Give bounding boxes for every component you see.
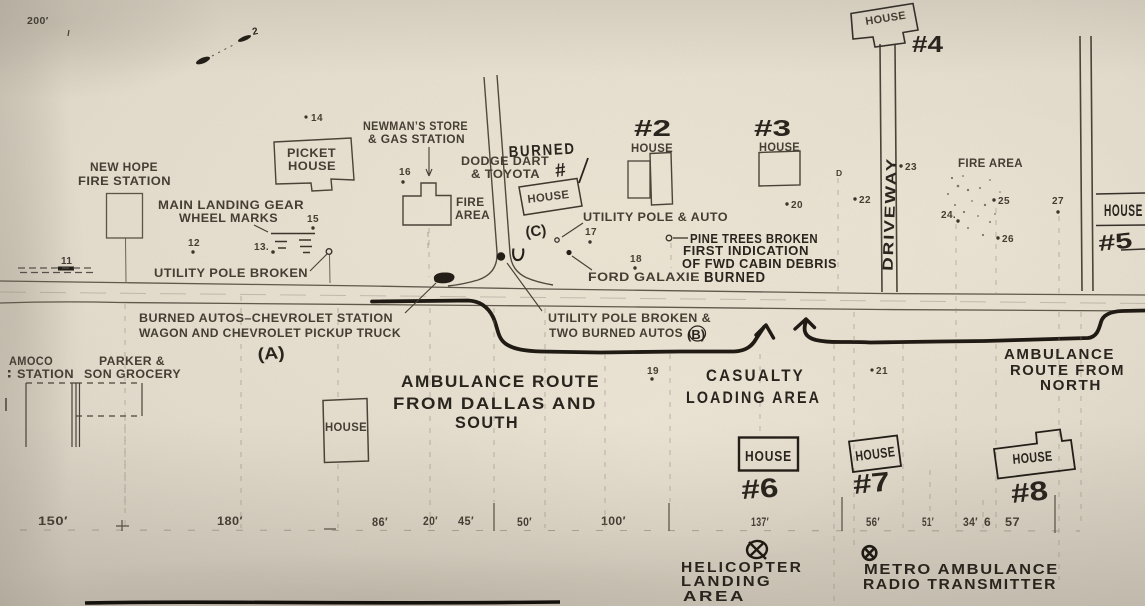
svg-text:11: 11 — [61, 256, 72, 267]
svg-text:METRO AMBULANCE: METRO AMBULANCE — [864, 562, 1059, 578]
svg-text:RADIO TRANSMITTER: RADIO TRANSMITTER — [863, 577, 1057, 593]
svg-text:#2: #2 — [634, 115, 671, 141]
svg-text:NORTH: NORTH — [1040, 378, 1102, 394]
svg-text:26: 26 — [1002, 234, 1014, 245]
svg-text:21: 21 — [876, 366, 888, 377]
svg-text:BURNED AUTOS–CHEVROLET STATION: BURNED AUTOS–CHEVROLET STATION — [139, 311, 393, 325]
svg-text:(A): (A) — [257, 343, 285, 364]
svg-text:HOUSE: HOUSE — [745, 449, 792, 465]
svg-text:CASUALTY: CASUALTY — [706, 366, 805, 385]
svg-text:& GAS STATION: & GAS STATION — [368, 132, 465, 146]
svg-text:200′: 200′ — [27, 15, 49, 27]
svg-text:OF FWD CABIN DEBRIS: OF FWD CABIN DEBRIS — [682, 257, 837, 271]
svg-text:UTILITY POLE & AUTO: UTILITY POLE & AUTO — [583, 210, 728, 224]
svg-text:#8: #8 — [1009, 475, 1049, 509]
svg-text:#6: #6 — [740, 472, 779, 505]
svg-text:FIRE STATION: FIRE STATION — [78, 174, 171, 188]
svg-text:13.: 13. — [254, 242, 269, 253]
svg-text:AREA: AREA — [683, 589, 746, 605]
svg-text:16: 16 — [399, 167, 411, 178]
svg-text:FIRE: FIRE — [456, 195, 484, 209]
svg-text:HOUSE: HOUSE — [325, 420, 367, 434]
svg-text:& TOYOTA: & TOYOTA — [471, 167, 540, 181]
svg-text:#5: #5 — [1097, 227, 1133, 255]
svg-text:50′: 50′ — [517, 515, 532, 529]
svg-text:NEW HOPE: NEW HOPE — [90, 160, 158, 174]
svg-text:D: D — [836, 168, 843, 178]
svg-text:HOUSE: HOUSE — [1104, 202, 1143, 220]
svg-text:ROUTE FROM: ROUTE FROM — [1010, 363, 1125, 379]
svg-text:#7: #7 — [851, 466, 891, 500]
svg-text:LANDING: LANDING — [681, 574, 772, 590]
svg-text:WAGON AND CHEVROLET PICKUP TRU: WAGON AND CHEVROLET PICKUP TRUCK — [139, 326, 401, 340]
svg-text:6: 6 — [984, 515, 991, 529]
svg-text:180′: 180′ — [217, 514, 243, 528]
svg-text:FORD GALAXIE: FORD GALAXIE — [588, 270, 700, 284]
svg-text:20′: 20′ — [423, 514, 438, 528]
svg-text:SON GROCERY: SON GROCERY — [84, 367, 181, 381]
svg-text:17: 17 — [585, 227, 597, 238]
svg-text:MAIN LANDING GEAR: MAIN LANDING GEAR — [158, 198, 304, 212]
svg-text:23: 23 — [905, 162, 917, 173]
svg-text:150′: 150′ — [38, 514, 68, 528]
svg-text:UTILITY POLE BROKEN: UTILITY POLE BROKEN — [154, 266, 308, 280]
svg-text:FIRE AREA: FIRE AREA — [958, 156, 1023, 170]
svg-text:DODGE DART: DODGE DART — [461, 154, 549, 168]
svg-text:FROM DALLAS AND: FROM DALLAS AND — [393, 394, 597, 413]
svg-text:UTILITY POLE BROKEN &: UTILITY POLE BROKEN & — [548, 311, 711, 325]
svg-text:15: 15 — [307, 214, 319, 225]
svg-text:27: 27 — [1052, 196, 1064, 207]
svg-text:FIRST INDICATION: FIRST INDICATION — [683, 244, 809, 258]
svg-text:BURNED: BURNED — [704, 270, 766, 286]
svg-text:56′: 56′ — [866, 515, 880, 529]
svg-text:AMBULANCE ROUTE: AMBULANCE ROUTE — [401, 372, 600, 391]
svg-text:NEWMAN’S STORE: NEWMAN’S STORE — [363, 119, 468, 133]
svg-text:HOUSE: HOUSE — [288, 159, 336, 173]
svg-text:SOUTH: SOUTH — [455, 413, 519, 432]
svg-text:TWO BURNED AUTOS: TWO BURNED AUTOS — [549, 326, 683, 340]
svg-text:57: 57 — [1005, 515, 1020, 529]
svg-text:PICKET: PICKET — [287, 146, 336, 160]
svg-text:12: 12 — [188, 238, 200, 249]
svg-text:AREA: AREA — [455, 208, 490, 222]
svg-text:(C): (C) — [525, 222, 547, 241]
svg-text:45′: 45′ — [458, 514, 474, 528]
svg-text:STATION: STATION — [17, 367, 74, 381]
svg-text:25: 25 — [998, 196, 1010, 207]
svg-text:LOADING AREA: LOADING AREA — [686, 388, 821, 407]
svg-text:34′: 34′ — [963, 515, 978, 529]
svg-text:86′: 86′ — [372, 515, 388, 529]
svg-text:WHEEL MARKS: WHEEL MARKS — [179, 211, 278, 225]
svg-text:AMBULANCE: AMBULANCE — [1004, 347, 1115, 363]
svg-text:22: 22 — [859, 195, 871, 206]
svg-text:PARKER &: PARKER & — [99, 354, 165, 368]
svg-text:18: 18 — [630, 254, 642, 265]
svg-text:#3: #3 — [754, 115, 791, 141]
svg-text:20: 20 — [791, 200, 803, 211]
svg-text:137′: 137′ — [751, 515, 769, 529]
svg-text:AMOCO: AMOCO — [9, 354, 53, 368]
svg-text:#4: #4 — [912, 31, 943, 57]
svg-text:14: 14 — [311, 113, 323, 124]
svg-text:24.: 24. — [941, 210, 956, 221]
svg-text:19: 19 — [647, 366, 659, 377]
svg-text:51′: 51′ — [922, 515, 934, 529]
